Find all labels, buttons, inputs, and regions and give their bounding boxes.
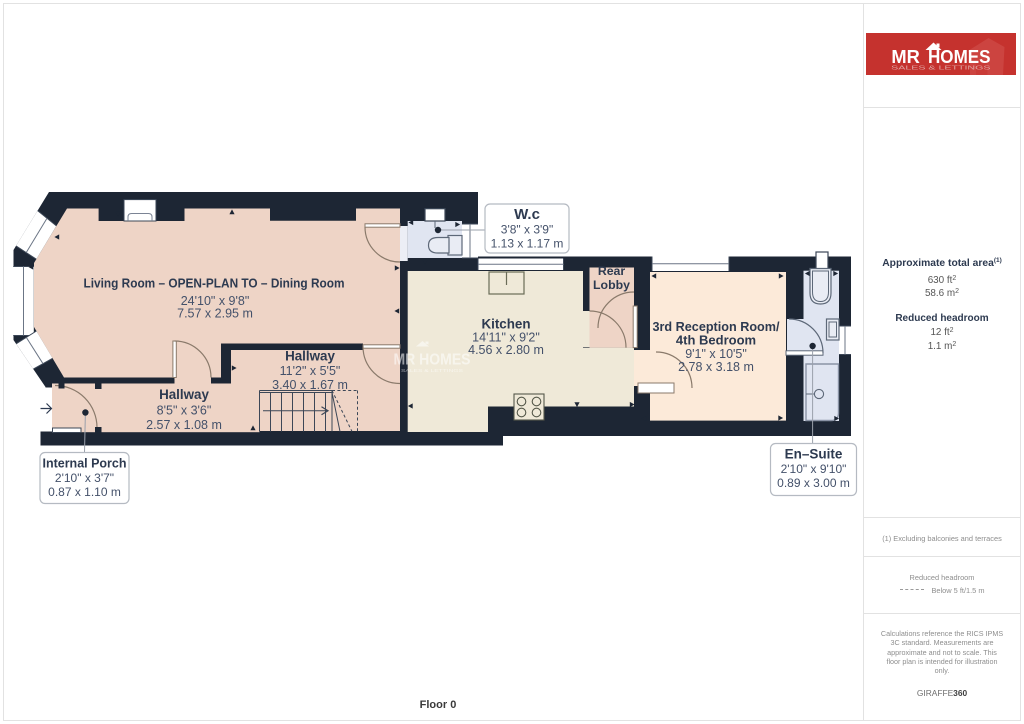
svg-text:3'8" x 3'9": 3'8" x 3'9" bbox=[501, 223, 553, 237]
svg-text:Kitchen: Kitchen bbox=[481, 317, 530, 332]
svg-text:Internal Porch: Internal Porch bbox=[42, 457, 126, 471]
svg-text:MR HOMES: MR HOMES bbox=[394, 352, 471, 369]
svg-text:11'2" x 5'5": 11'2" x 5'5" bbox=[280, 364, 341, 378]
svg-text:7.57 x 2.95 m: 7.57 x 2.95 m bbox=[177, 307, 253, 321]
svg-text:Hallway: Hallway bbox=[285, 349, 335, 364]
svg-text:0.89 x 3.00 m: 0.89 x 3.00 m bbox=[777, 476, 850, 490]
svg-text:W.c: W.c bbox=[514, 206, 540, 223]
svg-text:1.13 x 1.17 m: 1.13 x 1.17 m bbox=[491, 237, 564, 251]
svg-text:Lobby: Lobby bbox=[593, 278, 630, 292]
svg-text:2.57 x 1.08 m: 2.57 x 1.08 m bbox=[146, 418, 222, 432]
svg-text:SALES & LETTINGS: SALES & LETTINGS bbox=[891, 66, 991, 72]
svg-text:0.87 x 1.10 m: 0.87 x 1.10 m bbox=[48, 485, 121, 499]
svg-text:Rear: Rear bbox=[598, 264, 626, 278]
svg-text:Hallway: Hallway bbox=[159, 387, 209, 402]
svg-text:4th Bedroom: 4th Bedroom bbox=[676, 332, 756, 347]
svg-text:En–Suite: En–Suite bbox=[785, 447, 843, 462]
svg-text:4.56 x 2.80 m: 4.56 x 2.80 m bbox=[468, 343, 544, 357]
svg-text:SALES & LETTINGS: SALES & LETTINGS bbox=[401, 368, 463, 373]
svg-text:2.78 x 3.18 m: 2.78 x 3.18 m bbox=[678, 360, 754, 374]
svg-text:3.40 x 1.67 m: 3.40 x 1.67 m bbox=[272, 378, 348, 392]
svg-text:8'5" x 3'6": 8'5" x 3'6" bbox=[157, 404, 212, 418]
svg-text:Living Room – OPEN-PLAN TO – D: Living Room – OPEN-PLAN TO – Dining Room bbox=[84, 276, 345, 291]
svg-text:MR: MR bbox=[891, 46, 920, 67]
svg-text:2'10" x 3'7": 2'10" x 3'7" bbox=[55, 471, 114, 485]
svg-text:2'10" x 9'10": 2'10" x 9'10" bbox=[781, 462, 847, 476]
